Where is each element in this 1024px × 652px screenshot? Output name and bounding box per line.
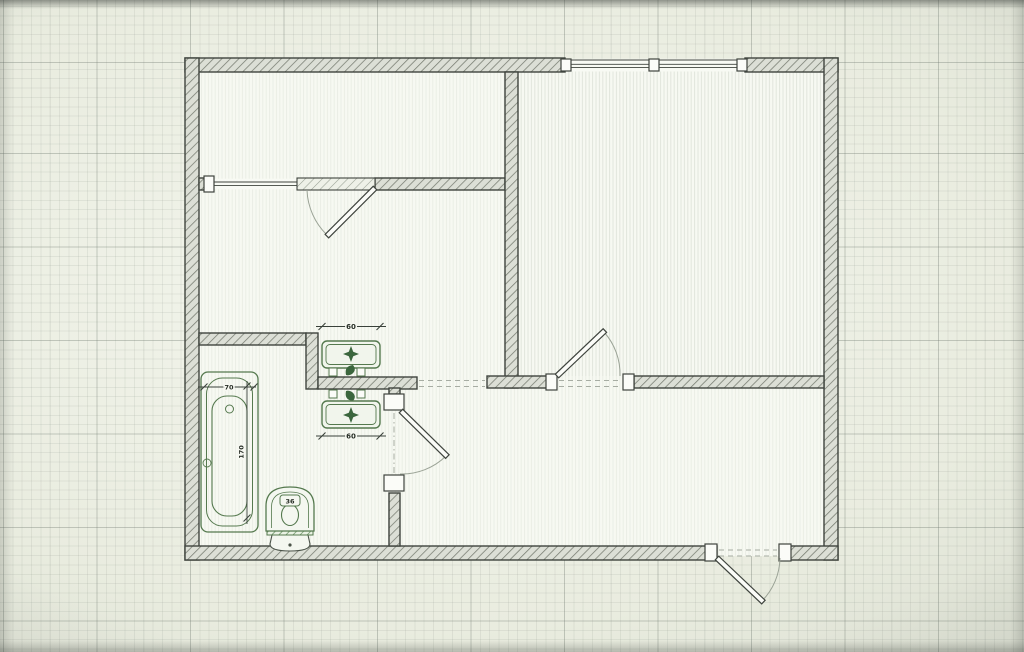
floor-plan: 70 170 36 60 xyxy=(0,0,1024,652)
window-top-wall xyxy=(561,59,747,71)
bathtub-width-label: 70 xyxy=(224,384,234,392)
window-jamb xyxy=(204,176,214,192)
hall-top-wall-right xyxy=(634,376,824,388)
hall-top-wall-left xyxy=(487,376,548,388)
bathroom-door-wall-top-stub xyxy=(389,388,400,394)
bathroom-door-wall-bottom xyxy=(389,493,400,546)
room1-partition-right xyxy=(375,178,505,190)
outer-wall-left xyxy=(185,58,199,560)
toilet-width-label: 36 xyxy=(285,498,295,506)
balcony-door-threshold xyxy=(297,178,375,190)
bathroom-sink-wall xyxy=(318,377,417,389)
entrance-door-arc xyxy=(762,558,780,601)
washbasin-lower-width-label: 60 xyxy=(346,433,356,441)
outer-wall-bottom-left xyxy=(185,546,717,560)
screen-photo: 70 170 36 60 xyxy=(0,0,1024,652)
toilet: 36 xyxy=(266,487,314,551)
main-vertical-wall xyxy=(505,72,518,388)
toilet-bowl xyxy=(266,487,314,531)
washbasin-upper-width-label: 60 xyxy=(346,323,356,331)
bathtub-length-label: 170 xyxy=(238,445,246,459)
outer-wall-top-left xyxy=(185,58,565,72)
entrance-door-leaf xyxy=(715,556,765,604)
bathroom-top-wall xyxy=(199,333,306,345)
outer-wall-right xyxy=(824,58,838,560)
bathroom-step-wall xyxy=(306,333,318,389)
toilet-base xyxy=(270,535,310,551)
